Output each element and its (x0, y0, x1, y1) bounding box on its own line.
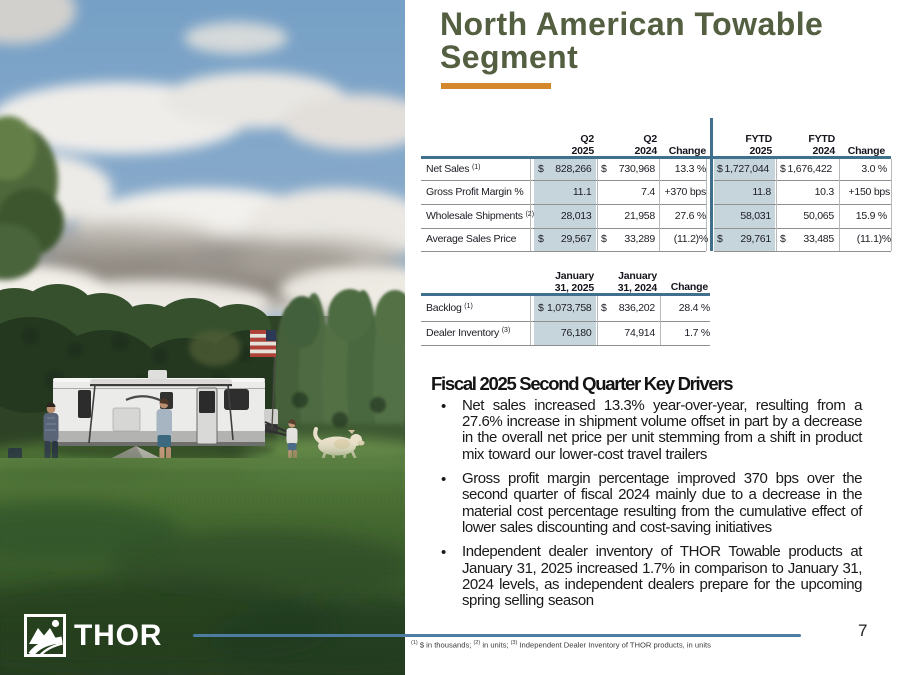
svg-text:THOR: THOR (74, 619, 162, 652)
